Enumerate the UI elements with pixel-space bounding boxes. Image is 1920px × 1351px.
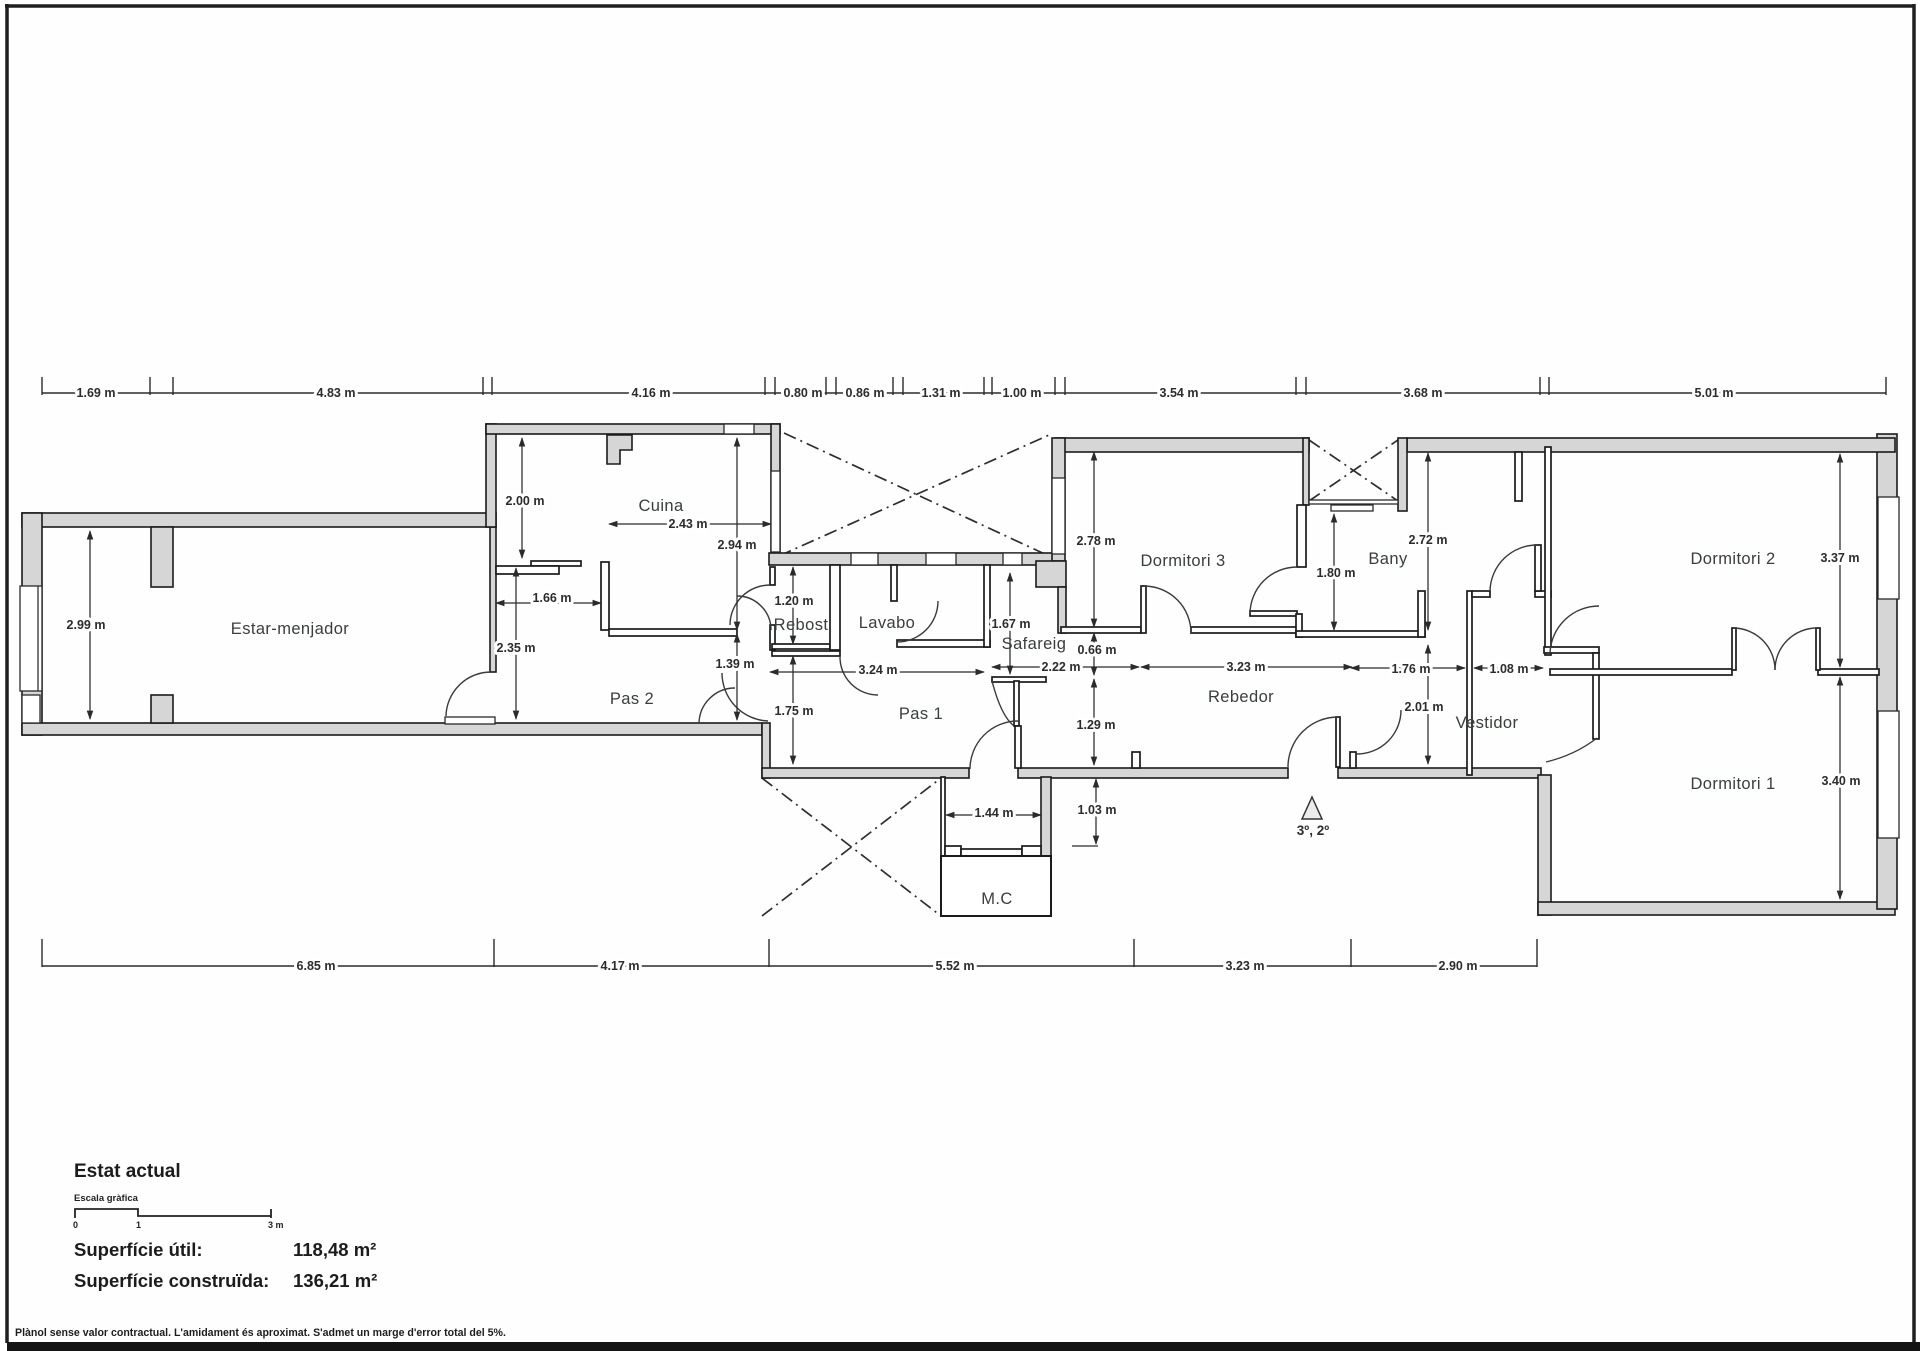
svg-text:2.99 m: 2.99 m bbox=[67, 618, 106, 632]
svg-text:1.03 m: 1.03 m bbox=[1078, 803, 1117, 817]
svg-text:1.29 m: 1.29 m bbox=[1077, 718, 1116, 732]
svg-text:0.66 m: 0.66 m bbox=[1078, 643, 1117, 657]
svg-text:Cuina: Cuina bbox=[638, 497, 684, 515]
svg-text:Rebost: Rebost bbox=[774, 616, 829, 634]
svg-text:2.22 m: 2.22 m bbox=[1042, 660, 1081, 674]
svg-text:3 m: 3 m bbox=[268, 1220, 284, 1230]
svg-text:118,48 m²: 118,48 m² bbox=[293, 1239, 376, 1260]
svg-text:4.83 m: 4.83 m bbox=[317, 386, 356, 400]
svg-text:2.72 m: 2.72 m bbox=[1409, 533, 1448, 547]
svg-text:Escala gràfica: Escala gràfica bbox=[74, 1193, 139, 1204]
svg-text:Dormitori 1: Dormitori 1 bbox=[1690, 775, 1775, 793]
svg-text:Pas 1: Pas 1 bbox=[899, 705, 943, 723]
svg-text:2.00 m: 2.00 m bbox=[506, 494, 545, 508]
svg-text:2.43 m: 2.43 m bbox=[669, 517, 708, 531]
svg-text:1.75 m: 1.75 m bbox=[775, 704, 814, 718]
svg-text:2.78 m: 2.78 m bbox=[1077, 534, 1116, 548]
svg-text:1.80 m: 1.80 m bbox=[1317, 566, 1356, 580]
svg-text:Lavabo: Lavabo bbox=[859, 614, 916, 632]
svg-text:Vestidor: Vestidor bbox=[1456, 714, 1519, 732]
svg-text:Plànol sense valor contractual: Plànol sense valor contractual. L'amidam… bbox=[15, 1327, 506, 1339]
svg-text:4.17 m: 4.17 m bbox=[601, 959, 640, 973]
svg-text:1.66 m: 1.66 m bbox=[533, 591, 572, 605]
svg-text:1.76 m: 1.76 m bbox=[1392, 662, 1431, 676]
svg-text:Pas 2: Pas 2 bbox=[610, 690, 654, 708]
svg-text:3.23 m: 3.23 m bbox=[1226, 959, 1265, 973]
svg-text:2.90 m: 2.90 m bbox=[1439, 959, 1478, 973]
svg-text:3.23 m: 3.23 m bbox=[1227, 660, 1266, 674]
svg-text:0.80 m: 0.80 m bbox=[784, 386, 823, 400]
svg-text:0.86 m: 0.86 m bbox=[846, 386, 885, 400]
svg-text:Dormitori 3: Dormitori 3 bbox=[1140, 552, 1225, 570]
svg-text:3.24 m: 3.24 m bbox=[859, 663, 898, 677]
svg-text:Bany: Bany bbox=[1368, 550, 1408, 568]
svg-text:Rebedor: Rebedor bbox=[1208, 688, 1274, 706]
svg-text:1.00 m: 1.00 m bbox=[1003, 386, 1042, 400]
svg-text:1.31 m: 1.31 m bbox=[922, 386, 961, 400]
svg-text:2.35 m: 2.35 m bbox=[497, 641, 536, 655]
svg-text:1.44 m: 1.44 m bbox=[975, 806, 1014, 820]
svg-text:1: 1 bbox=[136, 1220, 141, 1230]
svg-text:1.67 m: 1.67 m bbox=[992, 617, 1031, 631]
svg-text:0: 0 bbox=[73, 1220, 78, 1230]
svg-text:2.94 m: 2.94 m bbox=[718, 538, 757, 552]
svg-text:5.01 m: 5.01 m bbox=[1695, 386, 1734, 400]
svg-text:Superfície construïda:: Superfície construïda: bbox=[74, 1270, 269, 1291]
svg-text:3.54 m: 3.54 m bbox=[1160, 386, 1199, 400]
svg-text:1.69 m: 1.69 m bbox=[77, 386, 116, 400]
svg-text:3.37 m: 3.37 m bbox=[1821, 551, 1860, 565]
svg-text:Estar-menjador: Estar-menjador bbox=[231, 620, 349, 638]
svg-text:6.85 m: 6.85 m bbox=[297, 959, 336, 973]
svg-text:5.52 m: 5.52 m bbox=[936, 959, 975, 973]
svg-text:2.01 m: 2.01 m bbox=[1405, 700, 1444, 714]
svg-text:1.08 m: 1.08 m bbox=[1490, 662, 1529, 676]
svg-text:3.68 m: 3.68 m bbox=[1404, 386, 1443, 400]
svg-text:3º, 2º: 3º, 2º bbox=[1297, 823, 1329, 838]
svg-text:4.16 m: 4.16 m bbox=[632, 386, 671, 400]
svg-text:Estat actual: Estat actual bbox=[74, 1161, 181, 1182]
svg-text:1.39 m: 1.39 m bbox=[716, 657, 755, 671]
svg-text:1.20 m: 1.20 m bbox=[775, 594, 814, 608]
svg-text:3.40 m: 3.40 m bbox=[1822, 774, 1861, 788]
svg-text:M.C: M.C bbox=[981, 890, 1012, 908]
svg-text:Superfície útil:: Superfície útil: bbox=[74, 1239, 203, 1260]
svg-text:136,21 m²: 136,21 m² bbox=[293, 1270, 377, 1291]
svg-text:Dormitori 2: Dormitori 2 bbox=[1690, 550, 1775, 568]
svg-text:Safareig: Safareig bbox=[1002, 635, 1067, 653]
